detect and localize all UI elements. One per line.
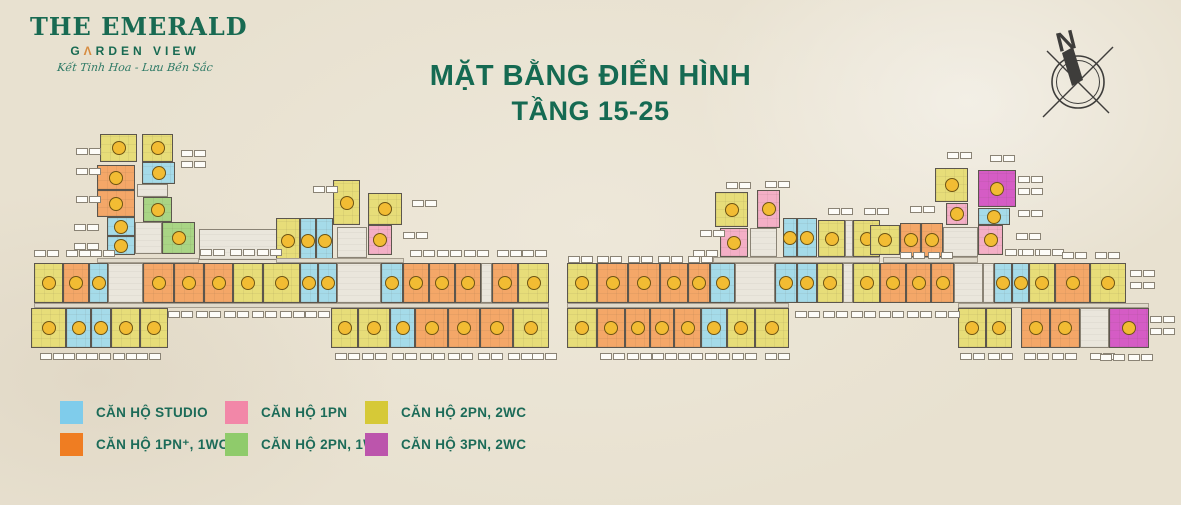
- apartment-unit-y: [142, 134, 173, 162]
- unit-info-label: [420, 353, 445, 360]
- apartment-unit-p: [946, 203, 968, 225]
- unit-number-badge: [655, 321, 669, 335]
- label-box: [535, 250, 547, 257]
- unit-info-label: [765, 353, 790, 360]
- label-box: [1143, 270, 1155, 277]
- label-box: [568, 256, 580, 263]
- label-box: [841, 208, 853, 215]
- label-box: [1143, 282, 1155, 289]
- unit-info-label: [196, 311, 221, 318]
- unit-info-label: [1150, 328, 1175, 335]
- label-box: [879, 311, 891, 318]
- label-box: [313, 186, 325, 193]
- apartment-unit-y: [958, 308, 986, 348]
- apartment-unit-st: [701, 308, 727, 348]
- label-box: [1031, 176, 1043, 183]
- apartment-unit-st: [91, 308, 111, 348]
- apartment-unit-y: [111, 308, 140, 348]
- unit-number-badge: [281, 234, 295, 248]
- label-box: [423, 250, 435, 257]
- apartment-unit-y: [34, 263, 63, 303]
- label-box: [765, 181, 777, 188]
- unit-info-label: [90, 250, 115, 257]
- label-box: [990, 155, 1002, 162]
- label-box: [920, 311, 932, 318]
- label-box: [705, 353, 717, 360]
- apartment-unit-st: [300, 263, 318, 303]
- unit-number-badge: [734, 321, 748, 335]
- label-box: [136, 353, 148, 360]
- apartment-unit-y: [817, 263, 843, 303]
- apartment-unit-st: [797, 263, 817, 303]
- unit-info-label: [628, 256, 653, 263]
- unit-number-badge: [72, 321, 86, 335]
- apartment-unit-o: [480, 308, 513, 348]
- label-box: [778, 181, 790, 188]
- unit-info-label: [1052, 353, 1077, 360]
- apartment-unit-st: [300, 218, 316, 263]
- label-box: [252, 311, 264, 318]
- unit-info-label: [960, 353, 985, 360]
- label-box: [1022, 249, 1034, 256]
- label-box: [1163, 316, 1175, 323]
- apartment-unit-p: [368, 225, 392, 255]
- label-box: [947, 152, 959, 159]
- unit-info-label: [658, 256, 683, 263]
- label-box: [851, 311, 863, 318]
- unit-number-badge: [318, 234, 332, 248]
- unit-number-badge: [367, 321, 381, 335]
- unit-number-badge: [1101, 276, 1115, 290]
- label-box: [1113, 354, 1125, 361]
- label-box: [1005, 249, 1017, 256]
- label-box: [1031, 188, 1043, 195]
- unit-info-label: [988, 353, 1013, 360]
- unit-info-label: [1024, 353, 1049, 360]
- unit-number-badge: [779, 276, 793, 290]
- unit-info-label: [224, 311, 249, 318]
- unit-info-label: [1018, 176, 1043, 183]
- label-box: [581, 256, 593, 263]
- unit-number-badge: [385, 276, 399, 290]
- label-box: [86, 353, 98, 360]
- label-box: [265, 311, 277, 318]
- unit-number-badge: [984, 233, 998, 247]
- unit-info-label: [1016, 233, 1041, 240]
- label-box: [213, 249, 225, 256]
- label-box: [732, 353, 744, 360]
- label-box: [392, 353, 404, 360]
- unit-number-badge: [681, 321, 695, 335]
- label-box: [149, 353, 161, 360]
- service-core: [135, 222, 162, 254]
- unit-number-badge: [42, 321, 56, 335]
- apartment-unit-o: [204, 263, 233, 303]
- unit-number-badge: [716, 276, 730, 290]
- apartment-unit-y: [513, 308, 549, 348]
- apartment-unit-y: [567, 263, 597, 303]
- unit-info-label: [448, 353, 473, 360]
- apartment-unit-y: [100, 134, 137, 162]
- label-box: [1018, 176, 1030, 183]
- label-box: [243, 249, 255, 256]
- unit-info-label: [900, 252, 925, 259]
- unit-info-label: [252, 311, 277, 318]
- apartment-unit-y: [276, 218, 300, 263]
- apartment-unit-y: [331, 308, 358, 348]
- label-box: [1150, 316, 1162, 323]
- apartment-unit-st: [775, 263, 797, 303]
- label-box: [765, 353, 777, 360]
- apartment-unit-o: [97, 165, 135, 190]
- label-box: [103, 250, 115, 257]
- apartment-unit-st: [783, 218, 797, 257]
- unit-info-label: [795, 311, 820, 318]
- apartment-unit-st: [89, 263, 108, 303]
- label-box: [778, 353, 790, 360]
- unit-number-badge: [457, 321, 471, 335]
- apartment-unit-y: [358, 308, 390, 348]
- unit-number-badge: [147, 321, 161, 335]
- unit-info-label: [688, 256, 713, 263]
- label-box: [1039, 249, 1051, 256]
- service-core: [337, 263, 381, 303]
- unit-info-label: [828, 208, 853, 215]
- unit-info-label: [464, 250, 489, 257]
- apartment-unit-p: [978, 225, 1003, 255]
- label-box: [610, 256, 622, 263]
- apartment-unit-y: [263, 263, 300, 303]
- apartment-unit-o: [403, 263, 429, 303]
- apartment-unit-y: [715, 192, 748, 227]
- label-box: [1031, 210, 1043, 217]
- unit-number-badge: [800, 231, 814, 245]
- apartment-unit-st: [1012, 263, 1029, 303]
- apartment-unit-o: [906, 263, 931, 303]
- unit-info-label: [392, 353, 417, 360]
- unit-number-badge: [490, 321, 504, 335]
- apartment-unit-y: [140, 308, 168, 348]
- apartment-unit-st: [710, 263, 735, 303]
- unit-info-label: [280, 311, 305, 318]
- apartment-unit-y: [755, 308, 789, 348]
- apartment-unit-o: [429, 263, 455, 303]
- unit-number-badge: [461, 276, 475, 290]
- unit-info-label: [1095, 252, 1120, 259]
- unit-info-label: [200, 249, 225, 256]
- unit-info-label: [597, 256, 622, 263]
- label-box: [335, 353, 347, 360]
- label-box: [941, 252, 953, 259]
- label-box: [412, 200, 424, 207]
- label-box: [1075, 252, 1087, 259]
- unit-number-badge: [69, 276, 83, 290]
- unit-info-label: [76, 148, 101, 155]
- apartment-unit-o: [448, 308, 480, 348]
- apartment-unit-y: [31, 308, 66, 348]
- unit-number-badge: [152, 276, 166, 290]
- label-box: [1141, 354, 1153, 361]
- label-box: [420, 353, 432, 360]
- unit-info-label: [910, 206, 935, 213]
- apartment-unit-st: [318, 263, 337, 303]
- apartment-unit-o: [597, 308, 625, 348]
- label-box: [477, 250, 489, 257]
- label-box: [1108, 252, 1120, 259]
- label-box: [478, 353, 490, 360]
- apartment-unit-st: [142, 162, 175, 184]
- unit-info-label: [76, 168, 101, 175]
- unit-number-badge: [762, 202, 776, 216]
- label-box: [181, 161, 193, 168]
- label-box: [34, 250, 46, 257]
- apartment-unit-st: [316, 218, 333, 263]
- unit-info-label: [947, 152, 972, 159]
- label-box: [1150, 328, 1162, 335]
- unit-info-label: [726, 182, 751, 189]
- label-box: [270, 249, 282, 256]
- label-box: [461, 353, 473, 360]
- unit-info-label: [76, 196, 101, 203]
- unit-number-badge: [637, 276, 651, 290]
- apartment-unit-o: [650, 308, 674, 348]
- service-core: [954, 263, 983, 303]
- label-box: [47, 250, 59, 257]
- unit-number-badge: [1029, 321, 1043, 335]
- unit-info-label: [86, 353, 111, 360]
- label-box: [701, 256, 713, 263]
- unit-info-label: [732, 353, 757, 360]
- label-box: [1130, 270, 1142, 277]
- label-box: [671, 256, 683, 263]
- unit-info-label: [823, 311, 848, 318]
- apartment-unit-st: [994, 263, 1012, 303]
- unit-info-label: [40, 353, 65, 360]
- label-box: [491, 353, 503, 360]
- unit-info-label: [74, 243, 99, 250]
- apartment-unit-y: [853, 263, 880, 303]
- label-box: [181, 150, 193, 157]
- label-box: [1065, 353, 1077, 360]
- label-box: [508, 353, 520, 360]
- label-box: [224, 311, 236, 318]
- label-box: [113, 353, 125, 360]
- label-box: [823, 311, 835, 318]
- apartment-unit-o: [174, 263, 204, 303]
- unit-number-badge: [182, 276, 196, 290]
- label-box: [658, 256, 670, 263]
- service-core: [843, 263, 853, 303]
- unit-info-label: [864, 208, 889, 215]
- unit-info-label: [627, 353, 652, 360]
- label-box: [688, 256, 700, 263]
- label-box: [1018, 188, 1030, 195]
- unit-number-badge: [275, 276, 289, 290]
- unit-number-badge: [94, 321, 108, 335]
- apartment-unit-y: [233, 263, 263, 303]
- apartment-unit-o: [1055, 263, 1090, 303]
- service-core: [337, 227, 367, 258]
- apartment-unit-y: [518, 263, 549, 303]
- apartment-unit-st: [797, 218, 817, 257]
- apartment-unit-o: [628, 263, 660, 303]
- unit-number-badge: [151, 203, 165, 217]
- typical-floor-plan: [0, 0, 1181, 505]
- label-box: [928, 252, 940, 259]
- label-box: [425, 200, 437, 207]
- unit-number-badge: [945, 178, 959, 192]
- label-box: [836, 311, 848, 318]
- unit-number-badge: [575, 276, 589, 290]
- label-box: [522, 250, 534, 257]
- unit-number-badge: [338, 321, 352, 335]
- label-box: [196, 311, 208, 318]
- apartment-unit-y: [368, 193, 402, 225]
- unit-info-label: [1150, 316, 1175, 323]
- unit-number-badge: [301, 234, 315, 248]
- service-core: [1080, 308, 1109, 348]
- label-box: [450, 250, 462, 257]
- label-box: [510, 250, 522, 257]
- unit-info-label: [403, 232, 428, 239]
- unit-number-badge: [435, 276, 449, 290]
- service-core: [481, 263, 492, 303]
- unit-info-label: [168, 311, 193, 318]
- unit-info-label: [74, 224, 99, 231]
- apartment-unit-o: [97, 190, 135, 217]
- unit-number-badge: [212, 276, 226, 290]
- service-core: [983, 263, 994, 303]
- unit-number-badge: [241, 276, 255, 290]
- unit-number-badge: [151, 141, 165, 155]
- unit-number-badge: [409, 276, 423, 290]
- label-box: [405, 353, 417, 360]
- label-box: [362, 353, 374, 360]
- label-box: [948, 311, 960, 318]
- apartment-unit-st: [390, 308, 415, 348]
- unit-info-label: [497, 250, 522, 257]
- unit-number-badge: [112, 141, 126, 155]
- label-box: [877, 208, 889, 215]
- unit-number-badge: [965, 321, 979, 335]
- unit-info-label: [700, 230, 725, 237]
- label-box: [87, 224, 99, 231]
- label-box: [448, 353, 460, 360]
- label-box: [545, 353, 557, 360]
- label-box: [1018, 210, 1030, 217]
- unit-info-label: [1130, 282, 1155, 289]
- unit-number-badge: [725, 203, 739, 217]
- label-box: [280, 311, 292, 318]
- label-box: [237, 311, 249, 318]
- unit-info-label: [851, 311, 876, 318]
- label-box: [960, 152, 972, 159]
- apartment-unit-st: [66, 308, 91, 348]
- unit-number-badge: [340, 196, 354, 210]
- unit-info-label: [600, 353, 625, 360]
- apartment-unit-o: [143, 263, 174, 303]
- label-box: [200, 249, 212, 256]
- apartment-unit-st: [381, 263, 403, 303]
- label-box: [209, 311, 221, 318]
- apartment-unit-m: [1109, 308, 1149, 348]
- unit-info-label: [410, 250, 435, 257]
- unit-number-badge: [800, 276, 814, 290]
- apartment-unit-o: [625, 308, 650, 348]
- label-box: [973, 353, 985, 360]
- unit-info-label: [1100, 354, 1125, 361]
- label-box: [1029, 233, 1041, 240]
- unit-number-badge: [114, 220, 128, 234]
- unit-number-badge: [1122, 321, 1136, 335]
- label-box: [613, 353, 625, 360]
- label-box: [600, 353, 612, 360]
- label-box: [74, 243, 86, 250]
- unit-number-badge: [987, 210, 1001, 224]
- label-box: [960, 353, 972, 360]
- unit-number-badge: [152, 166, 166, 180]
- label-box: [194, 161, 206, 168]
- label-box: [348, 353, 360, 360]
- apartment-unit-y: [727, 308, 755, 348]
- unit-info-label: [1128, 354, 1153, 361]
- apartment-unit-o: [1050, 308, 1080, 348]
- apartment-unit-o: [597, 263, 628, 303]
- label-box: [988, 353, 1000, 360]
- label-box: [318, 311, 330, 318]
- label-box: [864, 311, 876, 318]
- unit-info-label: [437, 250, 462, 257]
- label-box: [597, 256, 609, 263]
- unit-info-label: [1062, 252, 1087, 259]
- unit-info-label: [181, 150, 206, 157]
- unit-info-label: [181, 161, 206, 168]
- label-box: [1130, 282, 1142, 289]
- unit-number-badge: [886, 276, 900, 290]
- unit-number-badge: [1066, 276, 1080, 290]
- unit-number-badge: [524, 321, 538, 335]
- unit-info-label: [1018, 210, 1043, 217]
- label-box: [1163, 328, 1175, 335]
- apartment-unit-o: [492, 263, 518, 303]
- unit-info-label: [765, 181, 790, 188]
- label-box: [497, 250, 509, 257]
- unit-info-label: [34, 250, 59, 257]
- label-box: [194, 150, 206, 157]
- unit-number-badge: [606, 276, 620, 290]
- label-box: [89, 196, 101, 203]
- unit-number-badge: [1035, 276, 1049, 290]
- label-box: [305, 311, 317, 318]
- label-box: [726, 182, 738, 189]
- label-box: [532, 353, 544, 360]
- apartment-unit-g: [143, 197, 172, 222]
- apartment-unit-st: [107, 217, 135, 236]
- label-box: [1003, 155, 1015, 162]
- unit-info-label: [1039, 249, 1064, 256]
- unit-info-label: [705, 353, 730, 360]
- label-box: [89, 148, 101, 155]
- apartment-unit-y: [935, 168, 968, 202]
- unit-number-badge: [109, 171, 123, 185]
- unit-info-label: [335, 353, 360, 360]
- unit-number-badge: [92, 276, 106, 290]
- unit-number-badge: [425, 321, 439, 335]
- unit-number-badge: [42, 276, 56, 290]
- label-box: [913, 252, 925, 259]
- service-core: [735, 263, 775, 303]
- label-box: [416, 232, 428, 239]
